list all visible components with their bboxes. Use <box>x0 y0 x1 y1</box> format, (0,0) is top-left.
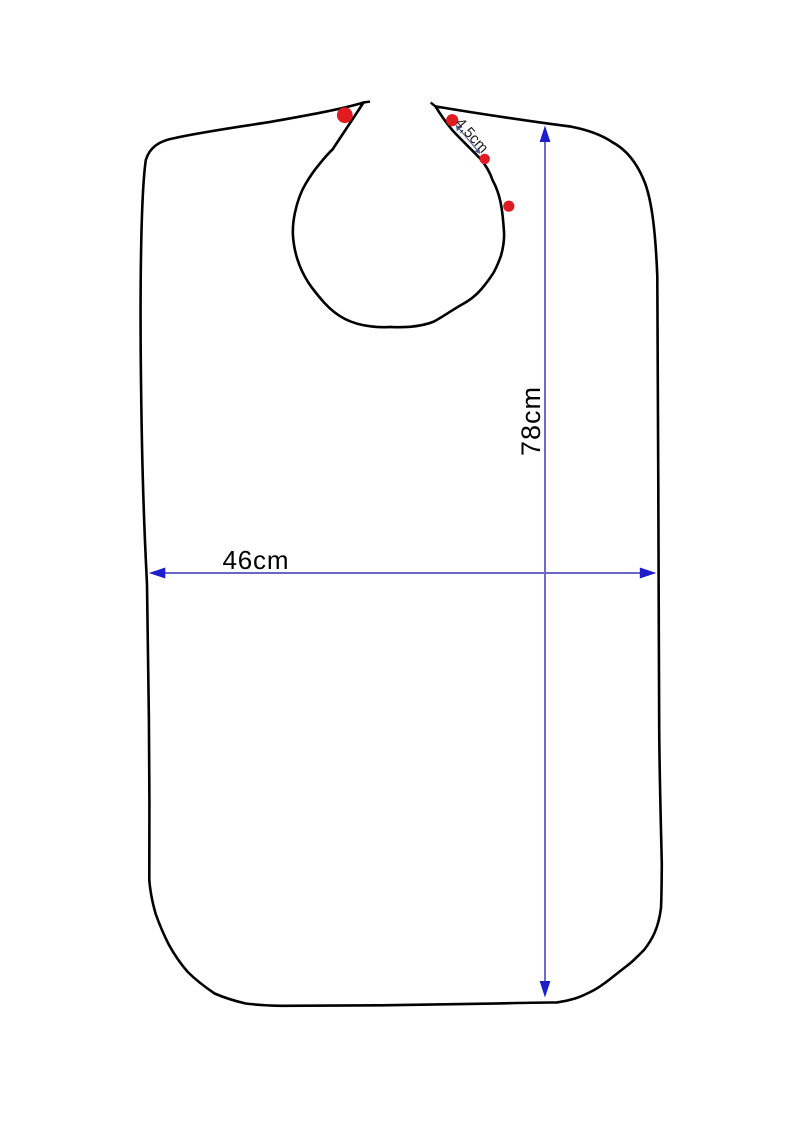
svg-text:78cm: 78cm <box>516 386 546 456</box>
svg-text:46cm: 46cm <box>223 545 290 575</box>
